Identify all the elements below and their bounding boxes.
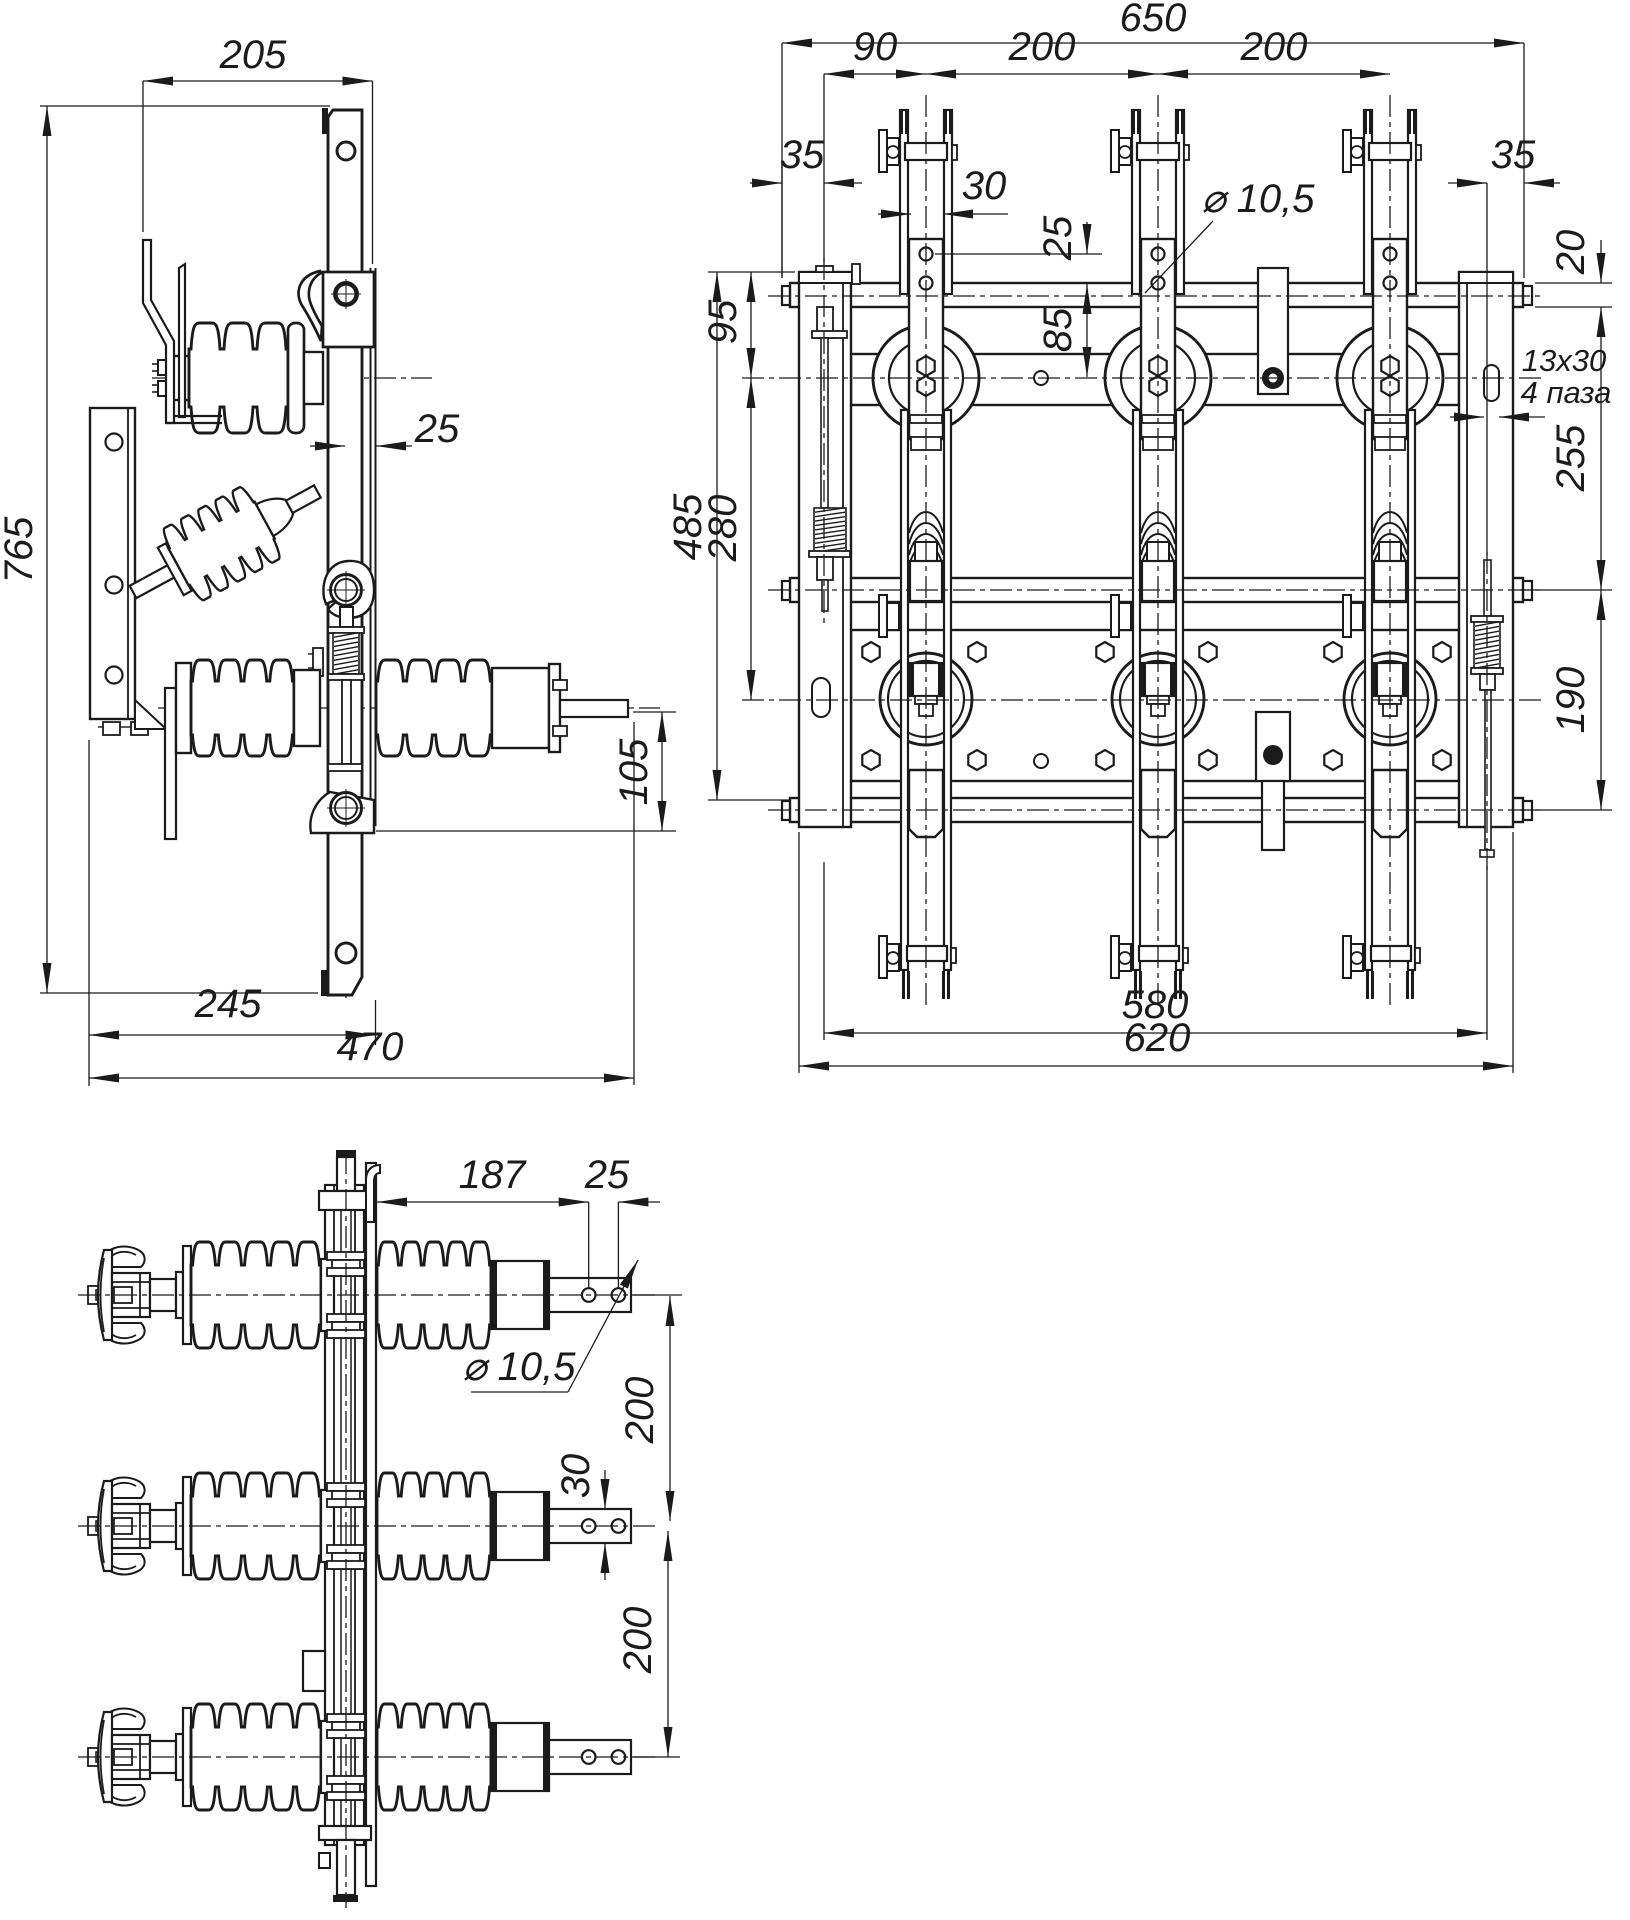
svg-text:30: 30 [554, 1454, 598, 1499]
svg-text:20: 20 [1549, 230, 1593, 276]
svg-text:90: 90 [853, 25, 898, 69]
svg-text:200: 200 [1008, 25, 1076, 69]
svg-text:25: 25 [1036, 215, 1080, 261]
svg-text:187: 187 [459, 1153, 527, 1197]
svg-text:35: 35 [1491, 133, 1536, 177]
svg-text:470: 470 [337, 1025, 404, 1069]
svg-text:245: 245 [194, 982, 262, 1026]
svg-text:620: 620 [1124, 1016, 1191, 1060]
svg-text:⌀ 10,5: ⌀ 10,5 [1201, 177, 1315, 221]
svg-text:485: 485 [666, 493, 710, 560]
svg-text:25: 25 [414, 407, 460, 451]
svg-text:200: 200 [1240, 25, 1308, 69]
svg-text:13x30: 13x30 [1522, 343, 1606, 378]
svg-text:200: 200 [618, 1377, 662, 1445]
svg-text:4 паза: 4 паза [1521, 375, 1612, 410]
svg-text:⌀ 10,5: ⌀ 10,5 [462, 1345, 576, 1389]
svg-text:190: 190 [1549, 667, 1593, 734]
svg-text:255: 255 [1549, 424, 1593, 492]
svg-text:765: 765 [0, 516, 41, 583]
svg-text:205: 205 [219, 33, 287, 77]
svg-text:35: 35 [780, 133, 825, 177]
svg-text:200: 200 [616, 1607, 660, 1675]
svg-text:85: 85 [1036, 307, 1080, 352]
svg-text:30: 30 [962, 164, 1007, 208]
svg-text:25: 25 [584, 1153, 630, 1197]
svg-text:95: 95 [701, 299, 745, 344]
svg-text:650: 650 [1120, 0, 1187, 40]
